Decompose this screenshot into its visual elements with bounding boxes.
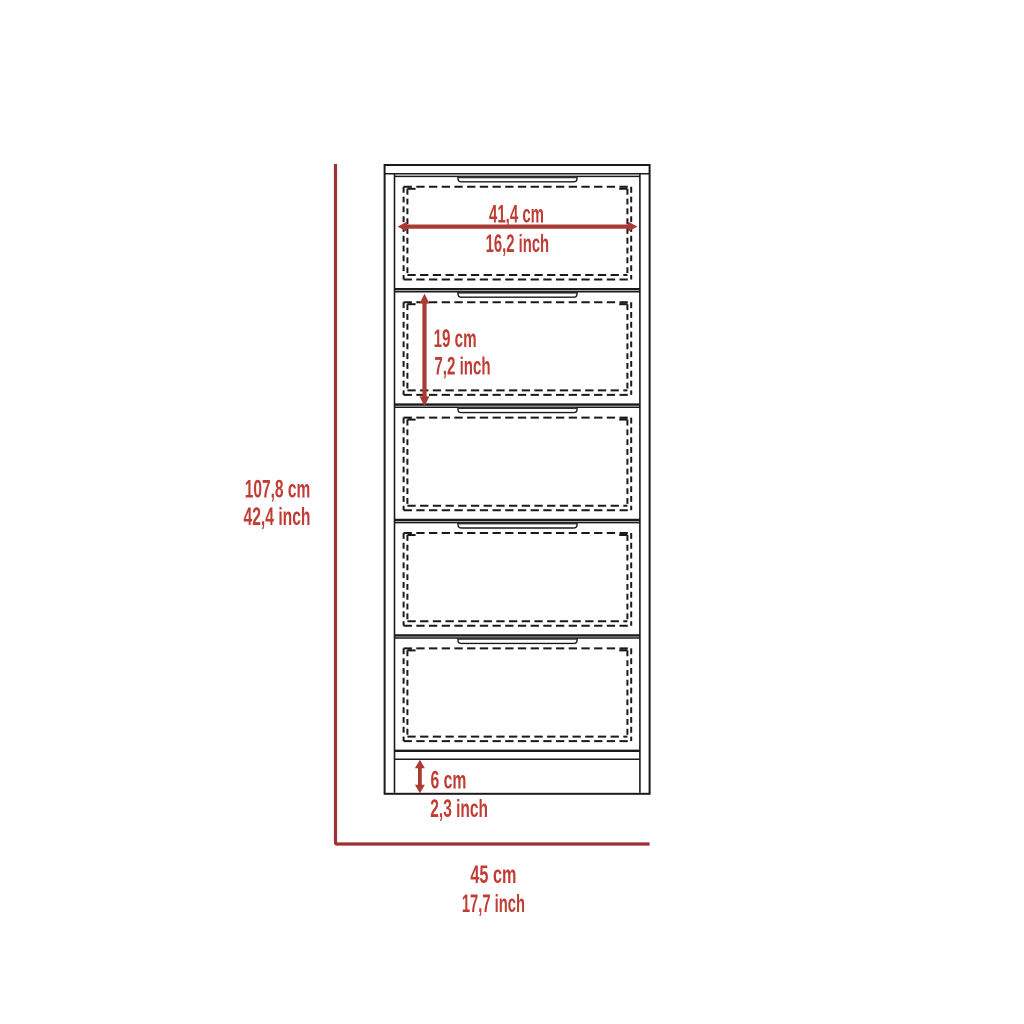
- svg-text:16,2 inch: 16,2 inch: [486, 230, 549, 258]
- svg-text:17,7 inch: 17,7 inch: [462, 890, 525, 918]
- svg-text:6 cm: 6 cm: [431, 767, 467, 795]
- svg-text:42,4 inch: 42,4 inch: [244, 503, 311, 531]
- svg-text:107,8 cm: 107,8 cm: [245, 476, 310, 504]
- svg-text:2,3 inch: 2,3 inch: [430, 795, 488, 823]
- svg-text:41,4 cm: 41,4 cm: [489, 200, 544, 228]
- svg-text:19 cm: 19 cm: [434, 325, 477, 353]
- svg-text:45 cm: 45 cm: [470, 862, 516, 889]
- svg-text:7,2 inch: 7,2 inch: [434, 353, 490, 381]
